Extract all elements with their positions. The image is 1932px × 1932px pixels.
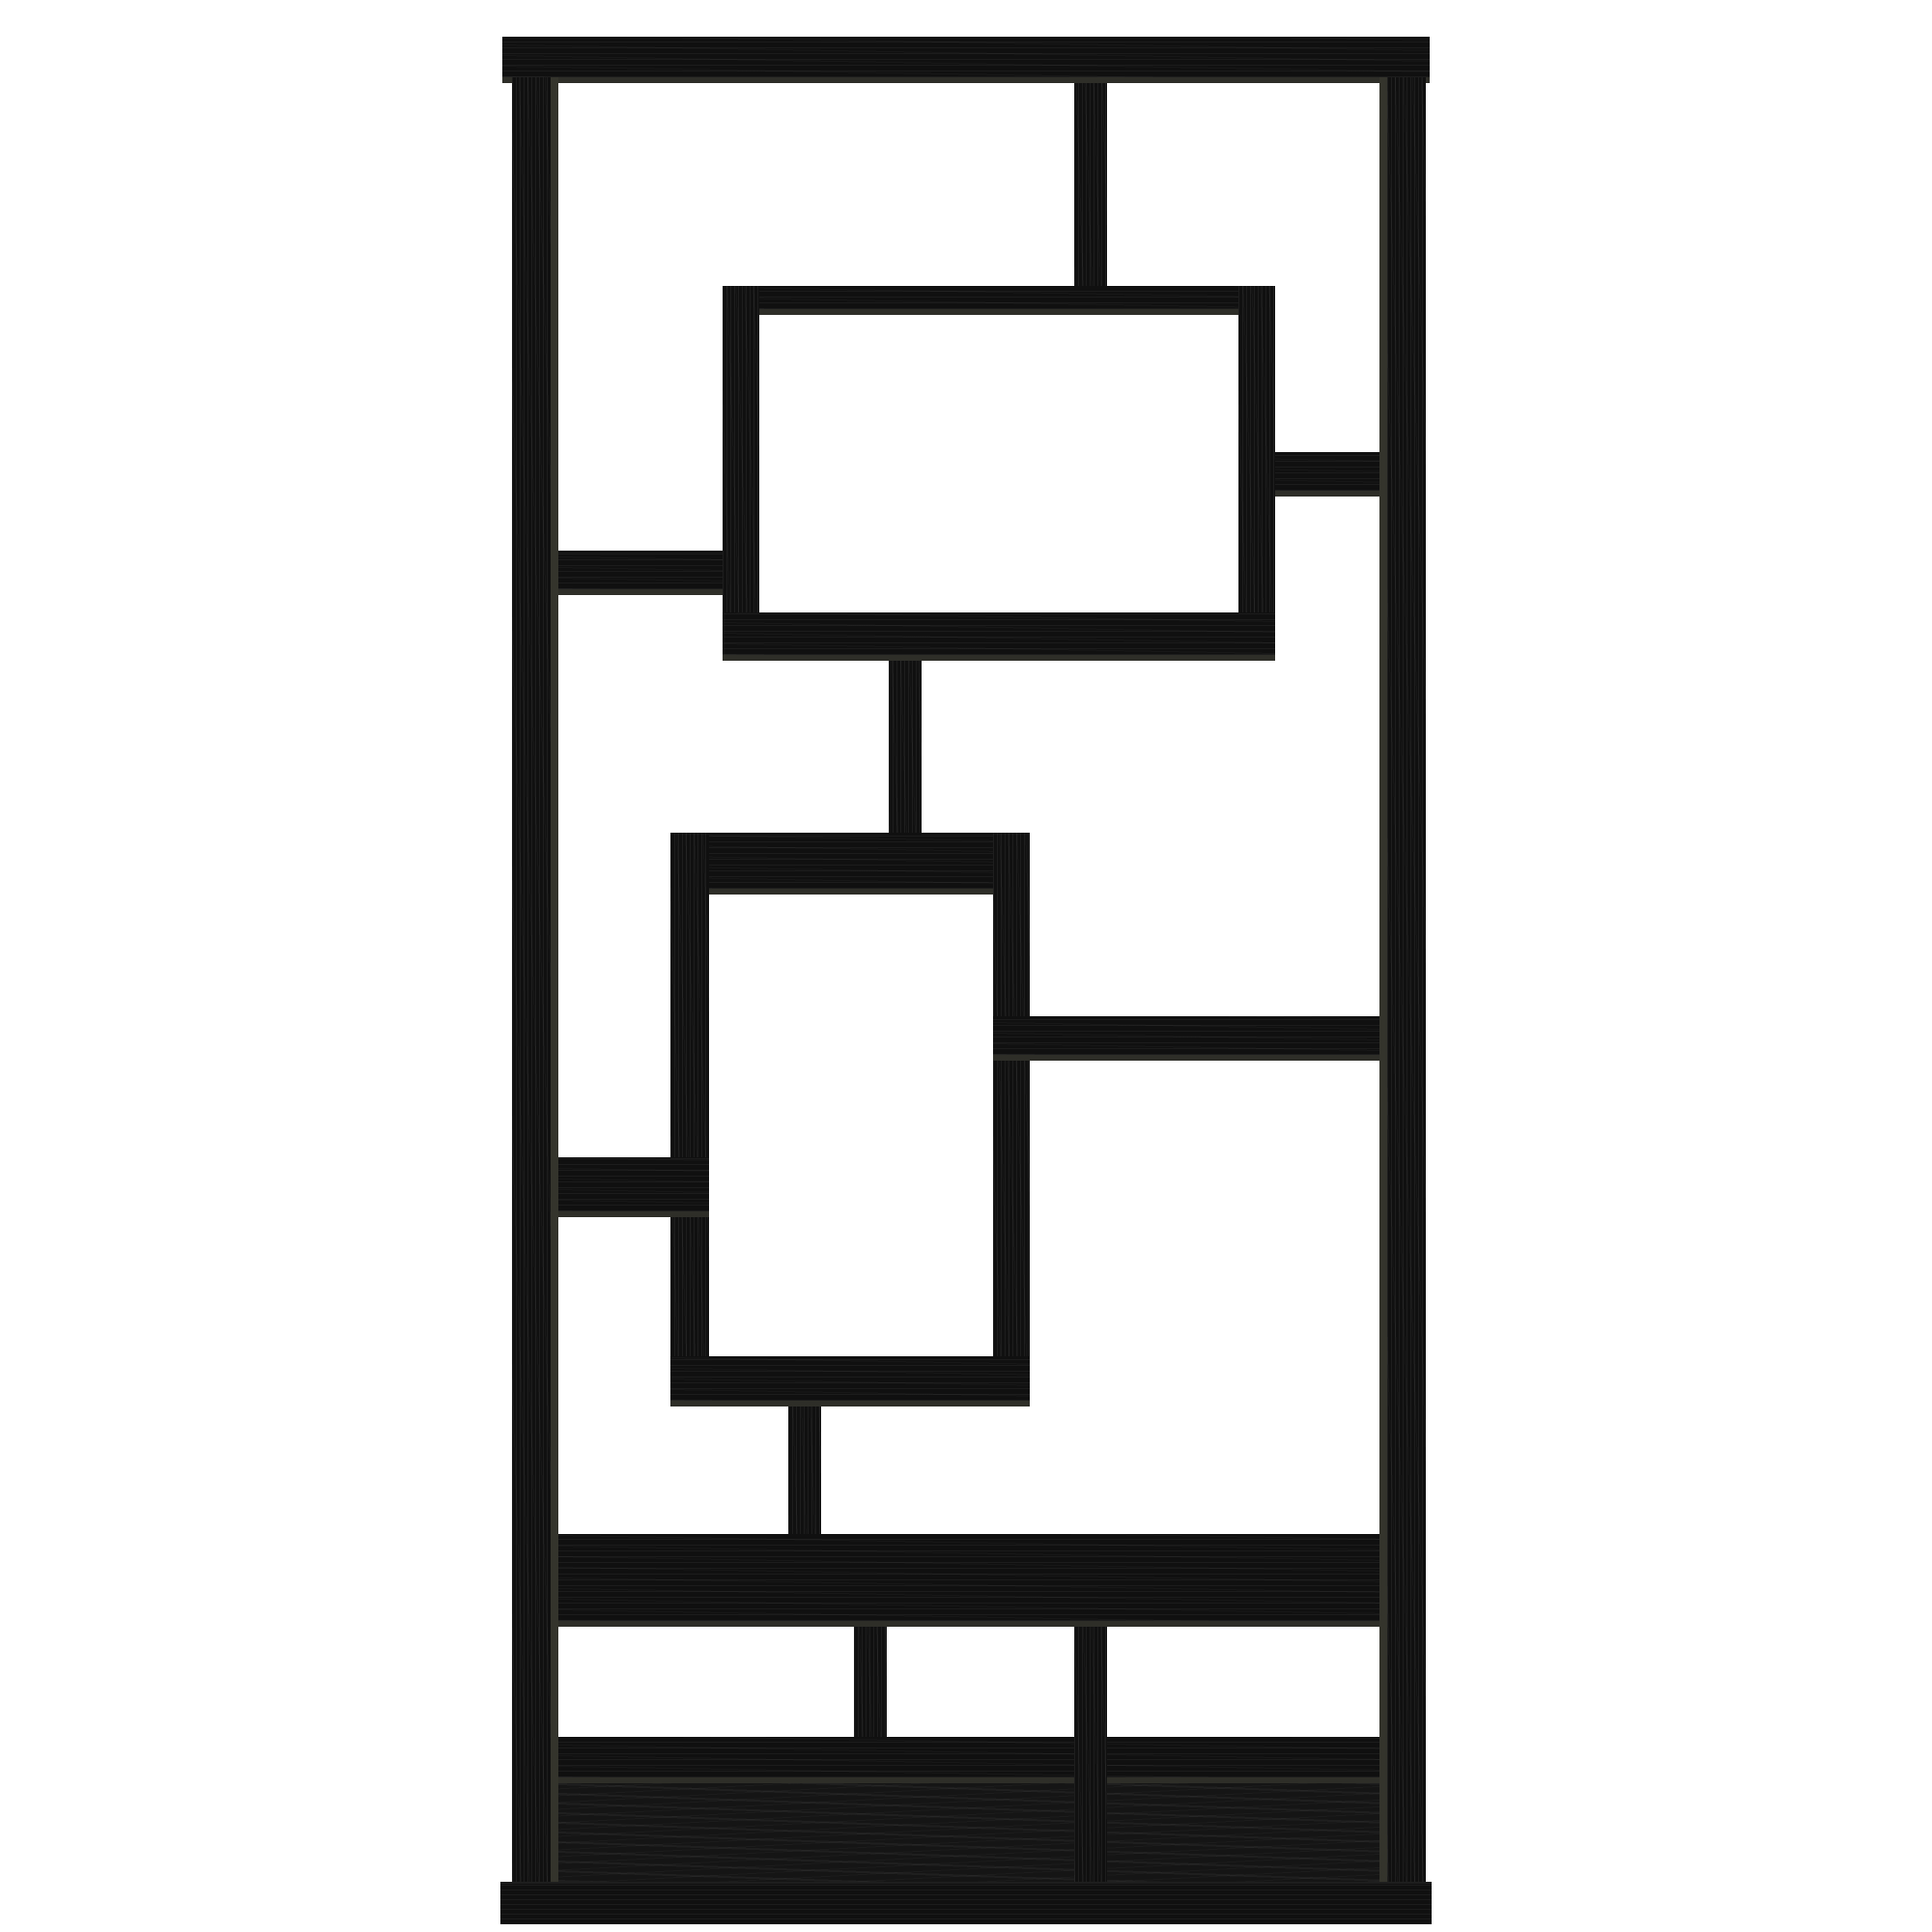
wide-shelf (558, 1534, 1379, 1627)
lower-center-stub (788, 1406, 821, 1536)
upper-box-top (723, 286, 1275, 315)
product-photo (0, 0, 1932, 1932)
middle-box-bottom (670, 1356, 1030, 1406)
upper-box-bottom (723, 612, 1275, 661)
right-side-panel (1379, 77, 1426, 1884)
base-plinth (500, 1882, 1432, 1924)
bottom-shelf (558, 1737, 1379, 1783)
upper-center-stub (889, 661, 922, 833)
middle-box-left (670, 833, 709, 1406)
lower-divider-left (854, 1627, 887, 1739)
right-long-shelf (993, 1016, 1379, 1061)
middle-box-top (670, 833, 1030, 895)
top-right-divider (1074, 83, 1107, 288)
mid-left-shelf (558, 1157, 709, 1217)
left-side-panel (512, 77, 558, 1884)
base-floor (558, 1783, 1379, 1882)
upper-box-right (1238, 286, 1275, 661)
middle-box-right (993, 833, 1030, 1406)
top-board (502, 37, 1430, 83)
lower-divider-right (1074, 1627, 1107, 1882)
bookcase (0, 0, 1932, 1932)
upper-box-left (723, 286, 759, 661)
